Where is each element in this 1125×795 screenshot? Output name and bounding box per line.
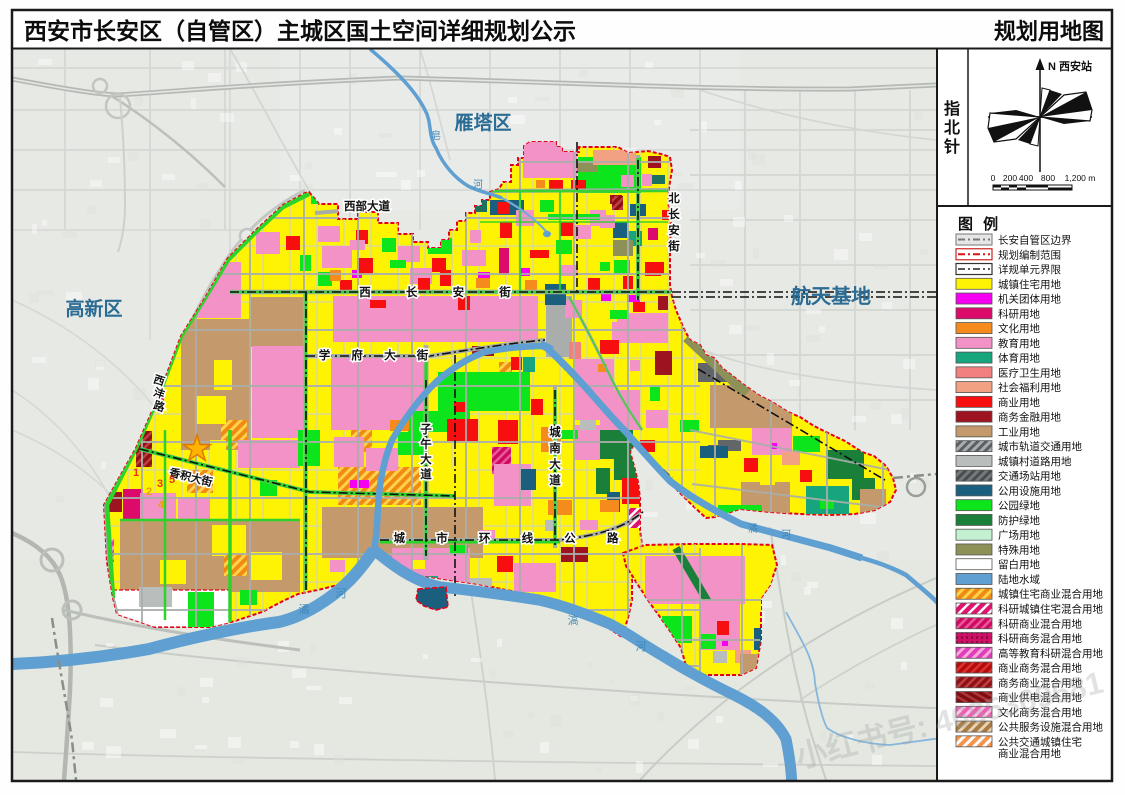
svg-text:商业用地: 商业用地 xyxy=(998,396,1040,409)
svg-text:西 长 安 街: 西 长 安 街 xyxy=(359,285,527,299)
svg-text:200: 200 xyxy=(1003,173,1017,183)
svg-text:公共服务设施混合用地: 公共服务设施混合用地 xyxy=(998,721,1103,734)
svg-text:教育用地: 教育用地 xyxy=(998,337,1040,350)
svg-text:学 府 大 街: 学 府 大 街 xyxy=(319,348,438,362)
svg-text:道: 道 xyxy=(549,473,561,487)
svg-text:5: 5 xyxy=(169,474,175,486)
svg-text:图 例: 图 例 xyxy=(958,215,1001,233)
svg-text:1,200 m: 1,200 m xyxy=(1065,173,1096,183)
svg-text:广场用地: 广场用地 xyxy=(998,529,1040,542)
svg-text:0: 0 xyxy=(991,173,996,183)
svg-text:潏: 潏 xyxy=(748,523,758,535)
svg-text:大: 大 xyxy=(420,452,432,466)
svg-text:陆地水域: 陆地水域 xyxy=(998,573,1040,586)
svg-text:子: 子 xyxy=(420,423,432,436)
svg-text:街: 街 xyxy=(667,239,680,253)
svg-text:规划用地图: 规划用地图 xyxy=(994,19,1104,44)
svg-text:科研商业混合用地: 科研商业混合用地 xyxy=(998,617,1082,630)
svg-text:商业混合用地: 商业混合用地 xyxy=(998,747,1061,760)
svg-text:2: 2 xyxy=(146,486,152,498)
svg-text:科研商务混合用地: 科研商务混合用地 xyxy=(998,632,1082,645)
svg-text:机关团体用地: 机关团体用地 xyxy=(998,293,1061,306)
svg-text:800: 800 xyxy=(1041,173,1055,183)
svg-text:3: 3 xyxy=(157,478,163,490)
svg-text:河: 河 xyxy=(336,587,347,600)
svg-text:河: 河 xyxy=(473,179,483,191)
svg-text:北: 北 xyxy=(668,191,680,205)
svg-text:文化用地: 文化用地 xyxy=(998,322,1040,335)
svg-text:河: 河 xyxy=(781,529,791,541)
svg-text:大: 大 xyxy=(549,457,561,471)
svg-text:雁塔区: 雁塔区 xyxy=(454,111,511,134)
svg-text:针: 针 xyxy=(944,137,960,156)
svg-text:公用设施用地: 公用设施用地 xyxy=(998,484,1061,497)
svg-text:滈: 滈 xyxy=(568,613,579,627)
svg-text:科研用地: 科研用地 xyxy=(998,307,1040,320)
svg-text:道: 道 xyxy=(420,467,432,481)
svg-text:400: 400 xyxy=(1019,173,1033,183)
svg-text:留白用地: 留白用地 xyxy=(998,558,1040,571)
svg-text:安: 安 xyxy=(668,223,680,237)
svg-text:南: 南 xyxy=(549,441,561,455)
svg-text:规划编制范围: 规划编制范围 xyxy=(998,248,1061,261)
svg-text:城镇村道路用地: 城镇村道路用地 xyxy=(998,455,1072,468)
svg-text:长安自管区边界: 长安自管区边界 xyxy=(998,234,1072,247)
svg-text:公园绿地: 公园绿地 xyxy=(998,499,1040,512)
svg-text:特殊用地: 特殊用地 xyxy=(998,543,1040,556)
svg-text:高新区: 高新区 xyxy=(65,297,122,320)
svg-text:交通场站用地: 交通场站用地 xyxy=(998,470,1061,483)
svg-text:科研城镇住宅混合用地: 科研城镇住宅混合用地 xyxy=(998,603,1103,616)
svg-text:城: 城 xyxy=(549,425,561,439)
svg-text:城镇住宅用地: 城镇住宅用地 xyxy=(998,278,1061,291)
svg-text:体育用地: 体育用地 xyxy=(998,352,1040,365)
svg-text:N 西安站: N 西安站 xyxy=(1048,59,1092,73)
svg-text:医疗卫生用地: 医疗卫生用地 xyxy=(998,366,1061,379)
svg-text:午: 午 xyxy=(420,437,432,451)
svg-text:河: 河 xyxy=(636,640,647,653)
svg-text:1: 1 xyxy=(133,467,139,479)
svg-text:航天基地: 航天基地 xyxy=(791,284,871,308)
svg-text:高等教育科研混合用地: 高等教育科研混合用地 xyxy=(998,647,1103,660)
svg-text:指: 指 xyxy=(944,99,960,118)
svg-text:商务金融用地: 商务金融用地 xyxy=(998,411,1061,424)
svg-text:长: 长 xyxy=(668,207,680,221)
svg-text:详规单元界限: 详规单元界限 xyxy=(998,263,1061,276)
svg-text:皂: 皂 xyxy=(431,129,441,142)
svg-text:公共交通城镇住宅: 公共交通城镇住宅 xyxy=(998,735,1082,748)
svg-text:社会福利用地: 社会福利用地 xyxy=(998,381,1061,394)
svg-text:城市轨道交通用地: 城市轨道交通用地 xyxy=(998,440,1082,453)
svg-text:城 市 环 线 公 路: 城 市 环 线 公 路 xyxy=(394,531,633,545)
svg-text:城镇住宅商业混合用地: 城镇住宅商业混合用地 xyxy=(998,588,1103,601)
svg-text:工业用地: 工业用地 xyxy=(998,425,1040,438)
svg-text:西安市长安区（自管区）主城区国土空间详细规划公示: 西安市长安区（自管区）主城区国土空间详细规划公示 xyxy=(24,18,576,44)
svg-text:4: 4 xyxy=(158,499,165,511)
svg-text:西部大道: 西部大道 xyxy=(344,199,390,213)
svg-text:潏: 潏 xyxy=(299,603,310,616)
svg-text:北: 北 xyxy=(944,119,960,137)
svg-text:防护绿地: 防护绿地 xyxy=(998,514,1040,527)
